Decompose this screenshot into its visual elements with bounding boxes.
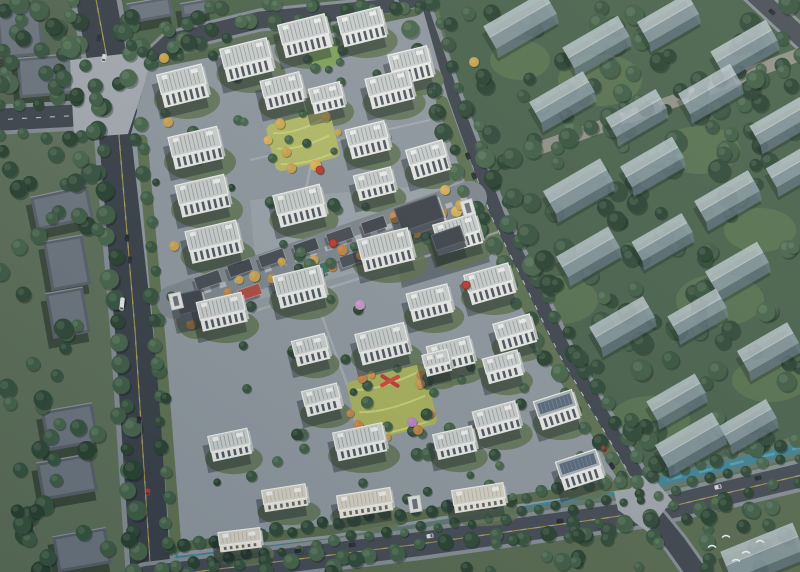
layer-fx — [0, 0, 800, 572]
rendering-canvas — [0, 0, 800, 572]
lighting-overlay — [0, 0, 800, 572]
aerial-site-plan-rendering — [0, 0, 800, 572]
